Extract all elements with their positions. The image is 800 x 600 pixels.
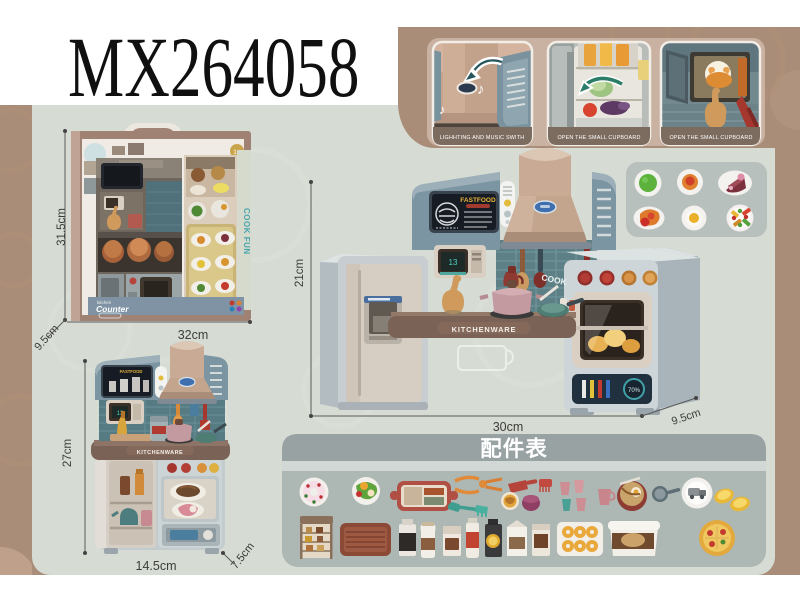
svg-text:27cm: 27cm <box>62 439 74 467</box>
svg-text:14.5cm: 14.5cm <box>136 559 177 573</box>
svg-text:70%: 70% <box>628 388 641 394</box>
svg-text:32cm: 32cm <box>178 328 209 342</box>
svg-text:Counter: Counter <box>96 304 129 314</box>
svg-text:KITCHENWARE: KITCHENWARE <box>137 450 183 456</box>
svg-text:30cm: 30cm <box>493 420 524 434</box>
svg-text:OPEN THE SMALL CUPBOARD: OPEN THE SMALL CUPBOARD <box>557 135 640 141</box>
svg-text:♪: ♪ <box>477 81 485 98</box>
svg-text:FASTFOOD: FASTFOOD <box>120 369 143 374</box>
svg-text:OPEN THE SMALL CUPBOARD: OPEN THE SMALL CUPBOARD <box>669 135 752 141</box>
svg-text:7.5cm: 7.5cm <box>229 540 257 571</box>
svg-text:21cm: 21cm <box>294 259 306 287</box>
svg-text:13: 13 <box>449 258 458 267</box>
svg-text:FASTFOOD: FASTFOOD <box>460 197 496 204</box>
svg-text:9.5cm: 9.5cm <box>670 407 702 428</box>
svg-text:31.5cm: 31.5cm <box>56 208 68 246</box>
svg-text:COOK FUN: COOK FUN <box>242 208 251 255</box>
svg-text:♪: ♪ <box>439 102 446 117</box>
svg-text:KITCHENWARE: KITCHENWARE <box>452 325 517 334</box>
svg-text:LIGHHTING AND MUSIC SWITH: LIGHHTING AND MUSIC SWITH <box>440 135 525 141</box>
svg-text:配件表: 配件表 <box>480 437 548 461</box>
